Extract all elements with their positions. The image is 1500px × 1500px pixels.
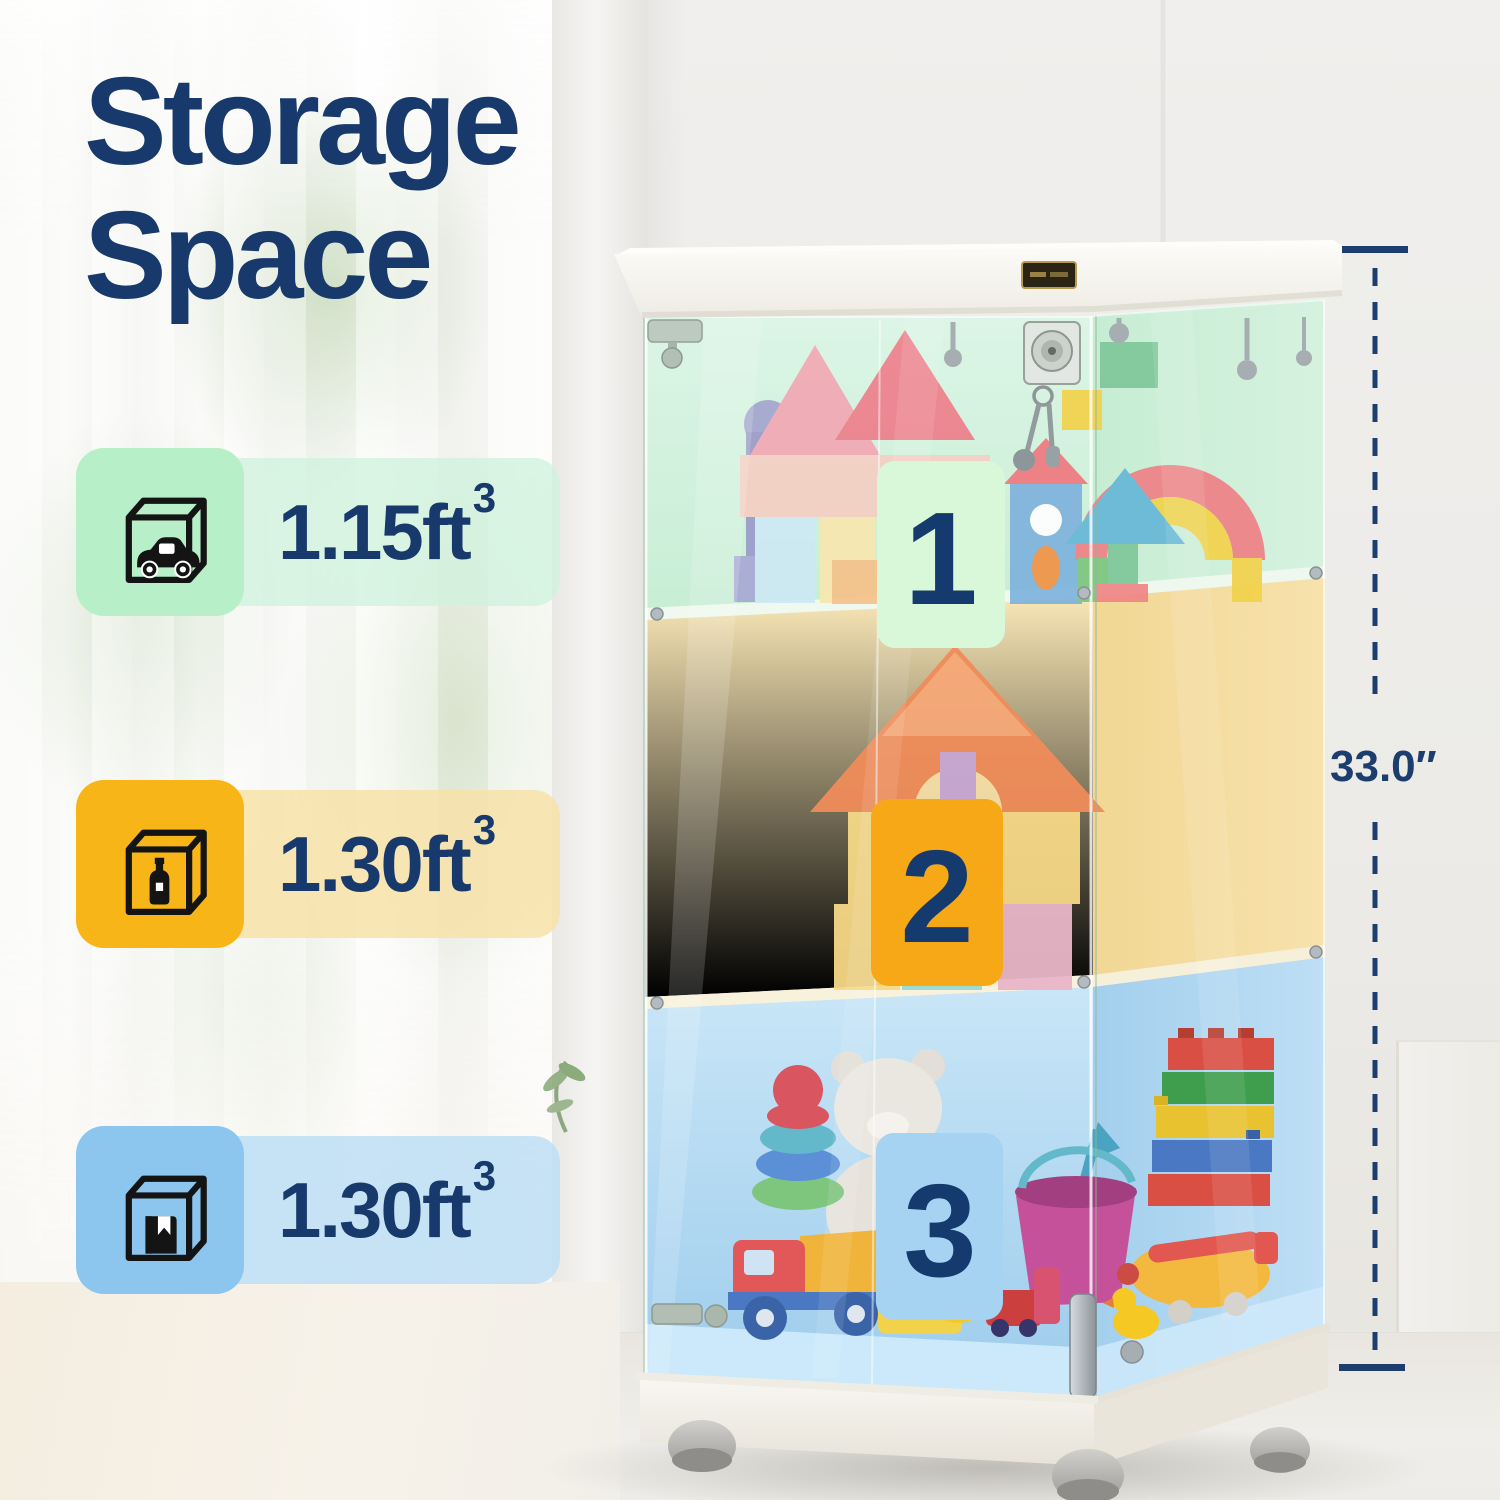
value-exponent: 3 bbox=[473, 1152, 494, 1200]
volume-value: 1.30ft3 bbox=[278, 1126, 494, 1294]
shelf-number-3: 3 bbox=[903, 1157, 976, 1304]
spec-tile bbox=[76, 780, 244, 948]
spec-row-shelf-1: 1.15ft3 bbox=[0, 448, 700, 616]
shelf-badge-1: 1 bbox=[877, 461, 1005, 648]
shelf-badge-2: 2 bbox=[871, 799, 1003, 986]
dimension-cap-top bbox=[1342, 246, 1408, 253]
height-dimension: 33.0″ bbox=[1330, 246, 1437, 1371]
shelf-badge-3: 3 bbox=[876, 1133, 1003, 1320]
height-dimension-label: 33.0″ bbox=[1330, 742, 1437, 791]
spec-row-shelf-3: 1.30ft3 bbox=[0, 1126, 700, 1294]
spec-row-shelf-2: 1.30ft3 bbox=[0, 780, 700, 948]
page-title: StorageSpace bbox=[84, 56, 518, 324]
spec-tile bbox=[76, 1126, 244, 1294]
volume-value: 1.30ft3 bbox=[278, 780, 494, 948]
value-number: 1.15 bbox=[278, 487, 422, 578]
value-number: 1.30 bbox=[278, 819, 422, 910]
product-infographic: StorageSpace 1.15ft3 bbox=[0, 0, 1500, 1500]
volume-value: 1.15ft3 bbox=[278, 448, 494, 616]
info-panel: StorageSpace 1.15ft3 bbox=[0, 0, 700, 1500]
shelf-number-1: 1 bbox=[904, 485, 977, 632]
value-unit: ft bbox=[422, 487, 470, 578]
value-exponent: 3 bbox=[473, 474, 494, 522]
door-handle bbox=[1070, 1294, 1096, 1398]
value-exponent: 3 bbox=[473, 806, 494, 854]
value-unit: ft bbox=[422, 819, 470, 910]
shelf-number-2: 2 bbox=[900, 823, 973, 970]
display-cabinet: 1 2 3 bbox=[614, 240, 1342, 1500]
title-line-1: Storage bbox=[84, 53, 518, 191]
cube-with-car-icon bbox=[108, 480, 212, 584]
value-number: 1.30 bbox=[278, 1165, 422, 1256]
spec-tile bbox=[76, 448, 244, 616]
value-unit: ft bbox=[422, 1165, 470, 1256]
cube-with-book-icon bbox=[108, 1158, 212, 1262]
title-line-2: Space bbox=[84, 187, 429, 325]
dimension-cap-bottom bbox=[1339, 1364, 1405, 1371]
cube-with-bottle-icon bbox=[108, 812, 212, 916]
